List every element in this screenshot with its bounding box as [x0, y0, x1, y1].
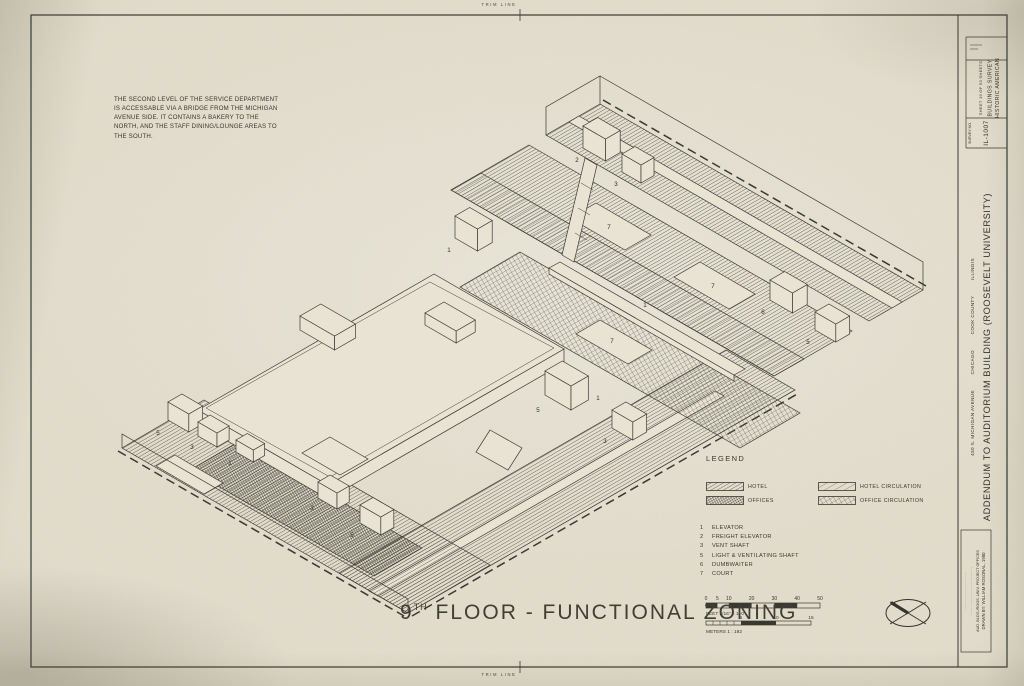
key-number: 2 [700, 533, 712, 542]
drawing-number-label: 5 [156, 430, 160, 437]
titleblock-survey-number: IL-1007 [983, 120, 990, 146]
drawing-number-label: 3 [603, 438, 607, 445]
drawing-number-label: 3 [614, 181, 618, 188]
titleblock-agency-line1: HISTORIC AMERICAN [995, 58, 1001, 118]
drawing-number-label: 1 [447, 247, 451, 254]
key-number: 1 [700, 524, 712, 533]
address-county: COOK COUNTY [970, 296, 975, 335]
key-item: 2FREIGHT ELEVATOR [700, 533, 799, 542]
address-city: CHICAGO [970, 350, 975, 374]
drawing-number-label: 5 [536, 407, 540, 414]
drawing-number-label: 2 [575, 157, 579, 164]
legend-item-hotel: HOTEL [706, 482, 768, 491]
trim-line-label-top: TRIM LINE [449, 2, 549, 7]
key-item: 5LIGHT & VENTILATING SHAFT [700, 552, 799, 561]
drawing-number-label: 5 [806, 339, 810, 346]
key-label: ELEVATOR [712, 525, 743, 531]
drawing-number-label: 7 [711, 283, 715, 290]
hotel-circulation-swatch-icon [818, 482, 856, 491]
sheet-title-number: 9 [400, 601, 414, 624]
titleblock-credit-line4: · · · · · · · · · · · · · · · · · · · [964, 572, 968, 610]
titleblock-survey-label: SURVEY NO. [968, 122, 972, 144]
titleblock-project-title: ADDENDUM TO AUDITORIUM BUILDING (ROOSEVE… [982, 193, 992, 521]
key-number: 7 [700, 570, 712, 579]
office-circulation-swatch-icon [818, 496, 856, 505]
note-line: IS ACCESSABLE VIA A BRIDGE FROM THE MICH… [114, 104, 322, 113]
key-label: COURT [712, 571, 733, 577]
key-label: LIGHT & VENTILATING SHAFT [712, 553, 799, 559]
drawing-number-label: 6 [761, 309, 765, 316]
legend-item-offices: OFFICES [706, 496, 774, 505]
address-street: 430 S. MICHIGAN AVENUE [970, 390, 975, 456]
trim-line-label-bottom: TRIM LINE [449, 672, 549, 677]
drawing-number-label: 1 [596, 395, 600, 402]
general-note: THE SECOND LEVEL OF THE SERVICE DEPARTME… [114, 95, 322, 141]
key-number: 6 [700, 561, 712, 570]
legend-item-office-circulation: OFFICE CIRCULATION [818, 496, 924, 505]
scale-tick-label: 50 [817, 596, 823, 602]
legend: LEGEND HOTEL OFFICES HOTEL CIRCULATION O… [706, 454, 956, 472]
note-line: NORTH, AND THE STAFF DINING/LOUNGE AREAS… [114, 122, 322, 131]
habs-sheet: 2 3 7 7 1 7 6 5 1 5 3 1 5 3 1 3 5 0 5 10… [0, 0, 1024, 686]
titleblock-agency-line2: BUILDINGS SURVEY [988, 59, 994, 116]
legend-label: OFFICE CIRCULATION [860, 498, 924, 504]
key-label: DUMBWAITER [712, 562, 753, 568]
key-number: 5 [700, 552, 712, 561]
key-label: FREIGHT ELEVATOR [712, 534, 772, 540]
note-line: AVENUE SIDE. IT CONTAINS A BAKERY TO THE [114, 113, 322, 122]
key-item: 1ELEVATOR [700, 524, 799, 533]
drawing-number-label: 3 [310, 505, 314, 512]
drawing-number-label: 3 [190, 444, 194, 451]
drawing-number-label: 1 [228, 460, 232, 467]
legend-title: LEGEND [706, 454, 956, 463]
drawing-number-label: 5 [350, 532, 354, 539]
key-number: 3 [700, 542, 712, 551]
legend-item-hotel-circulation: HOTEL CIRCULATION [818, 482, 921, 491]
scale-caption-meters: METERS 1 : 192 [706, 629, 742, 635]
key-label: VENT SHAFT [712, 543, 750, 549]
sheet-title: 9TH FLOOR - FUNCTIONAL ZONING [400, 601, 720, 625]
key-list: 1ELEVATOR 2FREIGHT ELEVATOR 3VENT SHAFT … [700, 524, 799, 579]
drawing-number-label: 1 [643, 302, 647, 309]
titleblock-credit-line2: AUD. BLDG./ROOS. UNIV. PROJECT OFFICES [976, 550, 980, 632]
titleblock-credit-line3: · · · · · · · · · · · · · · · · · · · · … [970, 567, 974, 616]
sheet-title-ordinal: TH [414, 602, 428, 612]
drawing-number-label: 7 [610, 338, 614, 345]
key-item: 3VENT SHAFT [700, 542, 799, 551]
scale-tick-label: 15 [808, 615, 814, 621]
legend-label: HOTEL [748, 484, 768, 490]
offices-swatch-icon [706, 496, 744, 505]
address-state: ILLINOIS [970, 258, 975, 280]
sheet-title-text: FLOOR - FUNCTIONAL ZONING [428, 601, 798, 624]
legend-label: HOTEL CIRCULATION [860, 484, 921, 490]
legend-label: OFFICES [748, 498, 774, 504]
drawing-number-label: 7 [607, 224, 611, 231]
hotel-swatch-icon [706, 482, 744, 491]
note-line: THE SECOND LEVEL OF THE SERVICE DEPARTME… [114, 95, 322, 104]
key-item: 6DUMBWAITER [700, 561, 799, 570]
titleblock-sheet-count: SHEET 19 OF 53 SHEETS [978, 61, 983, 115]
key-item: 7COURT [700, 570, 799, 579]
titleblock-credit-line1: DRAWN BY: WILLIAM ROSONAL, 1980 [981, 552, 986, 630]
note-line: THE SOUTH. [114, 132, 322, 141]
